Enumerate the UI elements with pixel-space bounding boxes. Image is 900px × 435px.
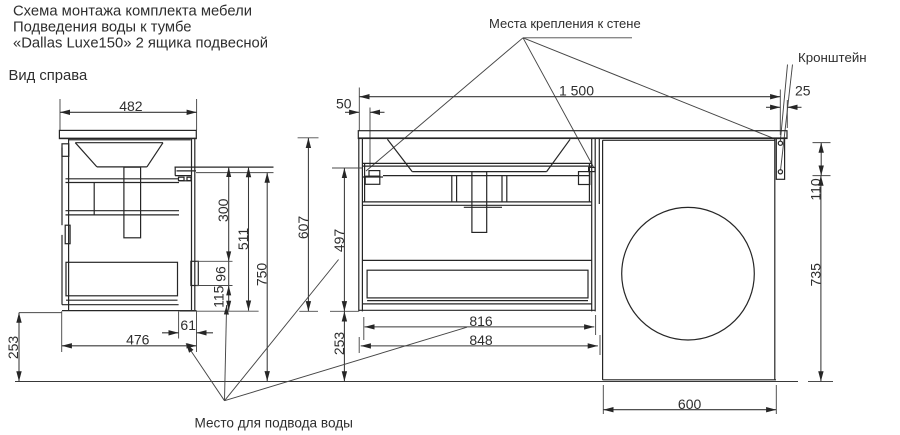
svg-text:735: 735	[807, 263, 823, 287]
svg-text:61: 61	[180, 317, 196, 333]
svg-text:253: 253	[331, 332, 347, 356]
svg-text:1 500: 1 500	[559, 83, 594, 99]
svg-text:600: 600	[678, 396, 702, 412]
svg-text:«Dallas Luxe150» 2 ящика подве: «Dallas Luxe150» 2 ящика подвесной	[13, 36, 268, 52]
svg-text:253: 253	[5, 336, 21, 360]
svg-text:511: 511	[235, 228, 251, 251]
svg-text:Кронштейн: Кронштейн	[798, 50, 867, 65]
svg-text:Места крепления к стене: Места крепления к стене	[489, 16, 641, 31]
svg-text:300: 300	[215, 198, 231, 222]
svg-text:Подведения воды к тумбе: Подведения воды к тумбе	[13, 20, 191, 36]
svg-text:115: 115	[211, 285, 227, 308]
svg-text:50: 50	[336, 96, 352, 112]
svg-text:Место для подвода воды: Место для подвода воды	[195, 416, 353, 431]
svg-text:482: 482	[119, 98, 143, 114]
svg-text:816: 816	[469, 313, 493, 329]
svg-text:476: 476	[126, 332, 150, 348]
svg-text:848: 848	[469, 332, 493, 348]
svg-text:750: 750	[254, 263, 270, 287]
svg-text:497: 497	[331, 229, 347, 253]
svg-text:96: 96	[213, 266, 229, 282]
svg-text:25: 25	[795, 83, 811, 99]
svg-text:Схема монтажа комплекта мебели: Схема монтажа комплекта мебели	[13, 4, 252, 20]
svg-text:Вид справа: Вид справа	[9, 68, 88, 84]
svg-text:607: 607	[295, 216, 311, 240]
